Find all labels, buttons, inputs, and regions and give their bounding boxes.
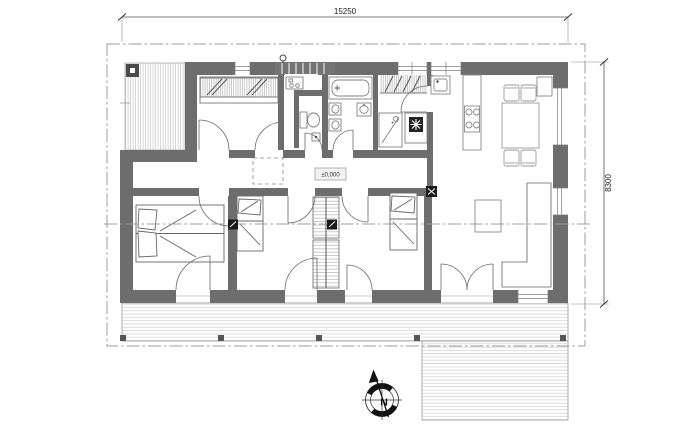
dimension-width-label: 15250 — [334, 7, 357, 16]
window — [235, 62, 250, 75]
dining-table — [502, 103, 539, 148]
cooktop-icon — [465, 106, 480, 132]
door-arc — [199, 120, 229, 150]
sofa — [502, 183, 551, 287]
deck-terrace — [122, 303, 568, 420]
bathroom — [329, 77, 372, 131]
shower-icon — [379, 113, 402, 147]
carport — [120, 63, 185, 150]
window — [398, 62, 427, 75]
double-bed — [136, 205, 224, 262]
deck-post — [120, 335, 126, 341]
door-arc — [342, 196, 368, 222]
attic-hatch — [253, 158, 283, 184]
fridge-icon — [537, 77, 552, 96]
door-arc — [467, 264, 493, 290]
dimension-top: 15250 — [118, 7, 572, 42]
section-marker — [228, 220, 238, 230]
washbasin-icon — [329, 119, 341, 131]
floor-plan-canvas: ±0,000 15250 8300 — [0, 0, 700, 433]
kitchen-sink-icon — [431, 76, 450, 94]
deck-post — [560, 335, 566, 341]
door-arc — [288, 196, 315, 223]
stove-icon — [426, 186, 437, 197]
single-bed — [237, 196, 263, 251]
deck-post — [218, 335, 224, 341]
vestibule — [286, 77, 320, 141]
dining-area — [502, 85, 539, 166]
window — [431, 62, 461, 75]
wardrobe — [380, 75, 427, 93]
dimension-right: 8300 — [571, 59, 613, 308]
door-arc — [441, 264, 467, 290]
living-room — [426, 183, 551, 287]
floor-plan-drawing: ±0,000 15250 8300 — [0, 0, 700, 433]
door-arc — [333, 130, 353, 150]
single-bed — [390, 193, 417, 250]
section-marker — [327, 220, 337, 230]
chair — [504, 85, 519, 101]
window — [553, 88, 568, 145]
washbasin-icon — [329, 103, 341, 115]
chair — [521, 150, 536, 166]
deck-post — [316, 335, 322, 341]
window — [518, 290, 548, 303]
dimension-height-label: 8300 — [604, 174, 613, 192]
deck-post — [414, 335, 420, 341]
entrance-canopy — [275, 55, 335, 75]
entry-lamp-icon — [280, 55, 286, 61]
shoe-cabinet-icon — [286, 77, 303, 89]
bedroom-s2 — [390, 193, 417, 250]
compass-rose: N — [362, 370, 402, 421]
heat-unit-fan-icon — [405, 113, 427, 143]
level-value: ±0,000 — [321, 173, 340, 179]
compass-north-label: N — [380, 397, 388, 409]
utility-room — [379, 75, 427, 147]
bathtub-icon — [329, 77, 372, 99]
washbasin-icon — [357, 103, 371, 116]
wardrobe — [200, 77, 278, 103]
coffee-table — [475, 200, 501, 232]
window — [553, 188, 568, 215]
bedroom-sw — [136, 205, 224, 262]
door-arc — [285, 258, 317, 290]
level-marker: ±0,000 — [315, 168, 346, 180]
bedroom-nw — [200, 77, 278, 103]
door-arc — [347, 265, 372, 290]
chair — [521, 85, 536, 101]
toilet-icon — [300, 112, 320, 128]
bedroom-s1 — [237, 196, 263, 251]
chair — [504, 150, 519, 166]
deck-extension — [422, 341, 568, 420]
